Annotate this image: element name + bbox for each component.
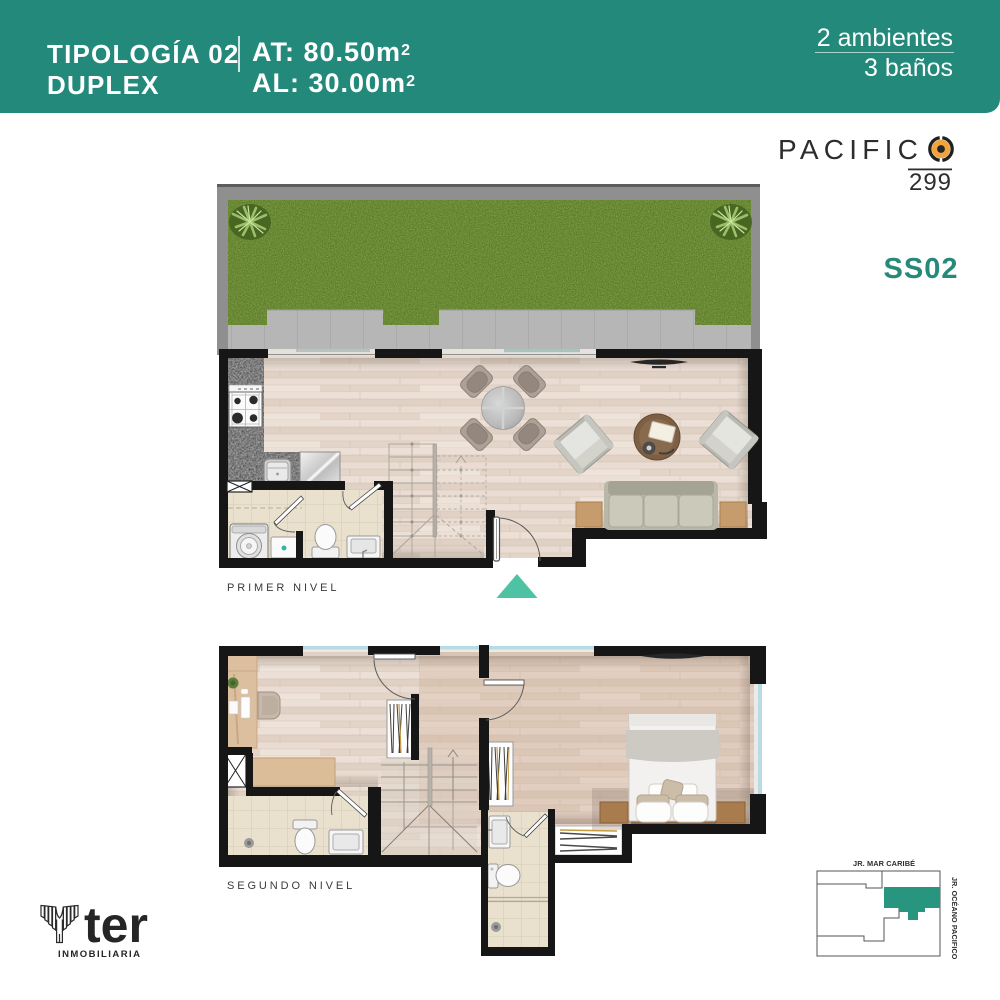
svg-text:PRIMER NIVEL: PRIMER NIVEL: [227, 582, 339, 594]
svg-text:JR. OCÉANO PACIFICO: JR. OCÉANO PACIFICO: [950, 877, 959, 960]
svg-text:JR. MAR CARIBÉ: JR. MAR CARIBÉ: [853, 859, 915, 868]
svg-text:SEGUNDO NIVEL: SEGUNDO NIVEL: [227, 880, 355, 892]
